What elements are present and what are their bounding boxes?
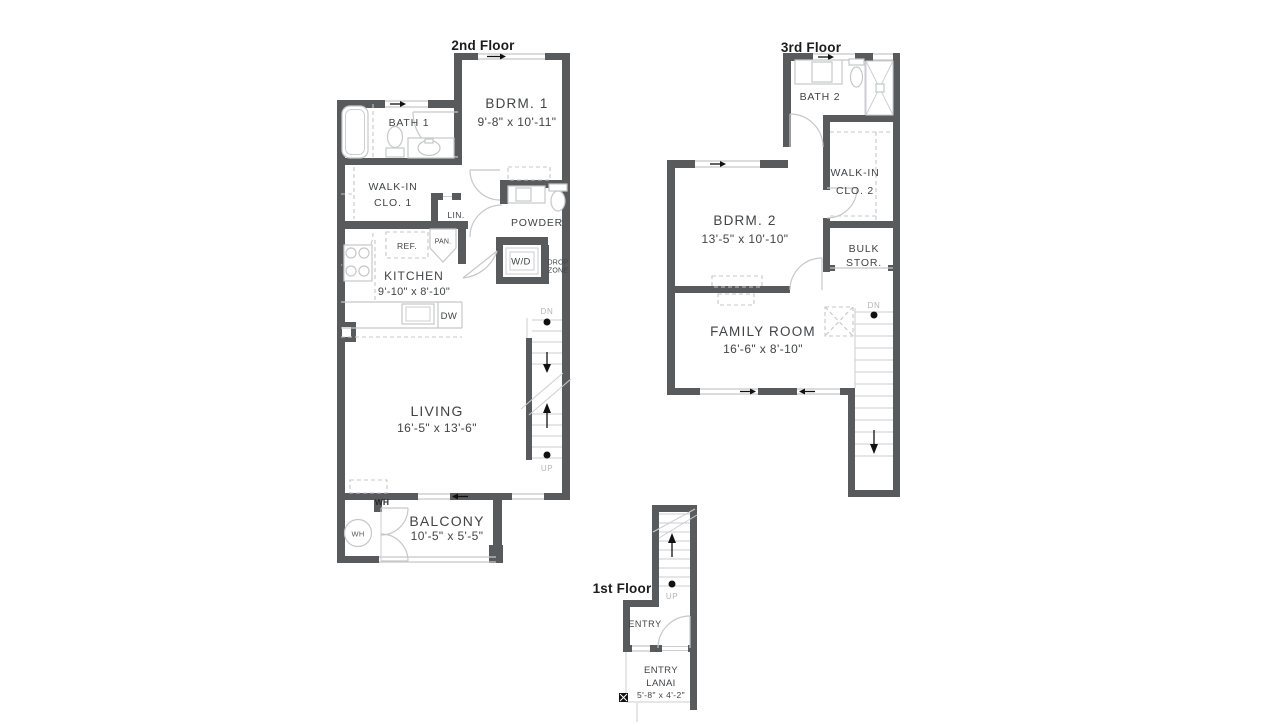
floor2-title: 2nd Floor — [451, 38, 515, 53]
floor1-stairs-up-label: UP — [666, 592, 678, 601]
walkin1-label-line1: WALK-IN — [369, 181, 418, 193]
entry-lanai-label-line1: ENTRY — [644, 665, 678, 676]
walkin1-label-line2: CLO. 1 — [374, 197, 412, 209]
water-heater-closet: WH WH — [345, 497, 409, 561]
floor1-entry-door — [658, 616, 690, 648]
bulk-storage-label-line1: BULK — [849, 243, 880, 255]
floor3-walls — [667, 53, 900, 497]
entry-lanai-dims: 5'-8" x 4'-2" — [637, 690, 685, 700]
floor3-plan: 3rd Floor — [667, 40, 900, 497]
floor1-title: 1st Floor — [593, 581, 652, 596]
family-room-label: FAMILY ROOM — [710, 324, 816, 339]
bulk-storage-label-line2: STOR. — [846, 257, 882, 269]
water-heater-tank-label: WH — [352, 530, 365, 539]
powder-fixtures — [508, 184, 567, 211]
floor3-title: 3rd Floor — [781, 40, 842, 55]
floor2-walls — [337, 53, 570, 563]
drop-zone-label-line2: ZONE — [548, 268, 568, 275]
living-dims: 16'-5" x 13'-6" — [397, 421, 477, 435]
kitchen-dims: 9'-10" x 8'-10" — [378, 286, 450, 298]
family-room-dims: 16'-6" x 8'-10" — [723, 342, 803, 356]
floor2-plan: 2nd Floor — [337, 0, 662, 563]
dishwasher-label: DW — [441, 311, 458, 322]
floor-plan-drawing: 2nd Floor — [0, 0, 1280, 725]
linen-closet-label: LIN. — [447, 210, 464, 220]
living-label: LIVING — [410, 403, 463, 419]
bdrm2-label: BDRM. 2 — [713, 213, 776, 228]
kitchen-label: KITCHEN — [384, 269, 444, 283]
walkin2-label-line1: WALK-IN — [831, 167, 880, 179]
drop-zone-label-line1: DROP — [547, 260, 568, 267]
bdrm1-label: BDRM. 1 — [485, 96, 548, 111]
bath2-fixtures — [795, 59, 893, 115]
floor1-plan: 1st Floor — [593, 505, 697, 722]
bdrm1-dims: 9'-8" x 10'-11" — [478, 115, 557, 129]
balcony-dims: 10'-5" x 5'-5" — [411, 529, 484, 543]
floor3-stairs-dn-label: DN — [868, 301, 881, 310]
refrigerator-label: REF. — [397, 241, 417, 251]
washer-dryer-label: W/D — [511, 257, 531, 268]
bath2-label: BATH 2 — [800, 91, 841, 103]
floor2-stairs-up-label: UP — [541, 464, 553, 473]
walkin2-label-line2: CLO. 2 — [836, 185, 874, 197]
entry-label: ENTRY — [628, 619, 661, 629]
floor-plan-page: 2nd Floor — [0, 0, 1280, 725]
balcony-label: BALCONY — [409, 513, 484, 529]
floor2-stairs-dn-label: DN — [541, 307, 554, 316]
bath1-label: BATH 1 — [389, 117, 430, 129]
bdrm2-dims: 13'-5" x 10'-10" — [702, 232, 789, 246]
entry-lanai-label-line2: LANAI — [646, 678, 675, 689]
pantry-label: PAN. — [435, 239, 452, 246]
water-heater-closet-label: WH — [375, 497, 389, 507]
powder-label: POWDER — [511, 217, 563, 229]
floor3-stairs: DN — [855, 301, 893, 456]
